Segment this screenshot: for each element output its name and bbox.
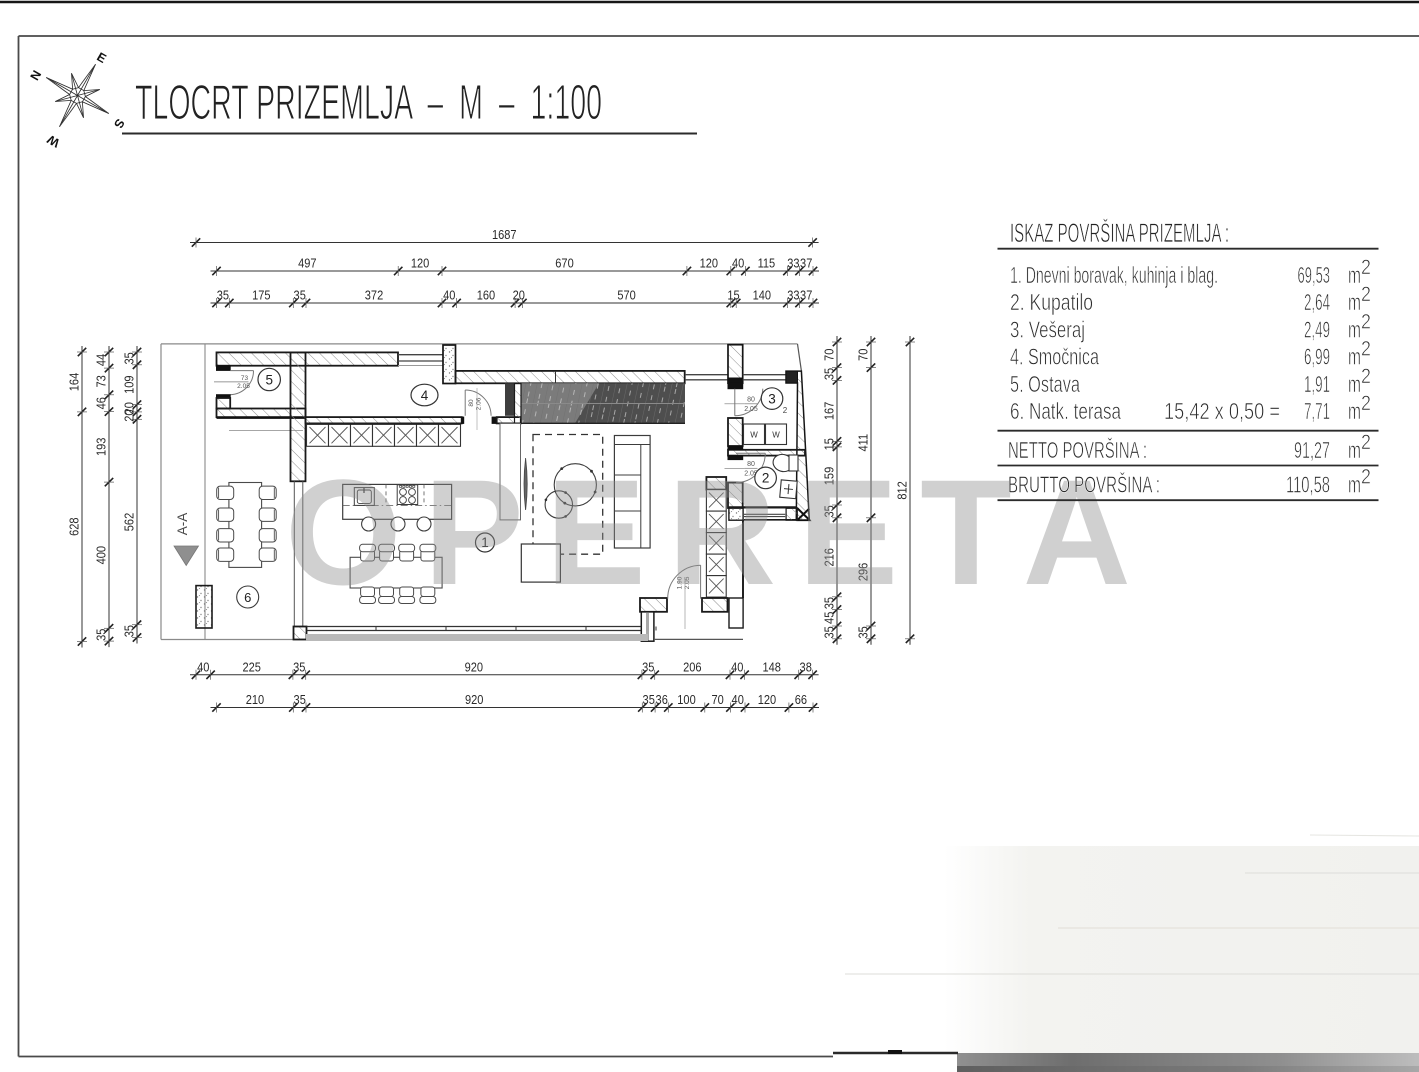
svg-text:m: m [1348, 438, 1361, 463]
svg-text:33: 33 [787, 256, 800, 271]
svg-text:40: 40 [732, 256, 745, 271]
svg-text:m: m [1348, 372, 1361, 397]
svg-text:115: 115 [758, 256, 776, 271]
svg-text:91,27: 91,27 [1294, 438, 1330, 463]
svg-text:20: 20 [122, 409, 137, 422]
svg-text:2: 2 [1361, 256, 1371, 280]
svg-text:S: S [111, 116, 127, 130]
svg-text:TLOCRT PRIZEMLJA – M – 1:1: TLOCRT PRIZEMLJA – M – 1:100 [135, 75, 602, 130]
svg-text:70: 70 [711, 692, 724, 707]
svg-text:80: 80 [468, 399, 475, 407]
svg-text:109: 109 [122, 375, 137, 394]
svg-text:2: 2 [1361, 465, 1371, 489]
svg-text:140: 140 [753, 288, 772, 303]
svg-text:670: 670 [555, 256, 574, 271]
svg-text:148: 148 [762, 659, 781, 674]
svg-text:m: m [1348, 263, 1361, 288]
svg-text:160: 160 [477, 288, 496, 303]
svg-text:70: 70 [856, 348, 871, 361]
svg-text:W: W [772, 431, 780, 440]
svg-text:167: 167 [822, 401, 837, 420]
svg-text:4: 4 [421, 388, 429, 403]
svg-text:110,58: 110,58 [1286, 473, 1330, 498]
svg-text:66: 66 [795, 692, 808, 707]
svg-text:120: 120 [758, 692, 777, 707]
svg-text:920: 920 [465, 692, 484, 707]
svg-text:7,71: 7,71 [1304, 399, 1330, 424]
svg-text:m: m [1348, 290, 1361, 315]
svg-text:2: 2 [1361, 431, 1371, 455]
svg-text:6: 6 [244, 590, 251, 605]
svg-text:2: 2 [1361, 364, 1371, 388]
svg-text:35: 35 [294, 692, 307, 707]
svg-text:73: 73 [94, 375, 109, 388]
svg-text:2.05: 2.05 [237, 383, 250, 390]
svg-text:5. Ostava: 5. Ostava [1010, 372, 1080, 397]
svg-text:40: 40 [197, 659, 210, 674]
svg-text:37: 37 [800, 288, 813, 303]
svg-text:2.05: 2.05 [744, 406, 758, 413]
svg-text:2,64: 2,64 [1304, 290, 1330, 315]
svg-text:920: 920 [465, 659, 484, 674]
svg-text:A-A: A-A [175, 513, 190, 536]
svg-text:562: 562 [122, 513, 137, 532]
svg-text:4. Smočnica: 4. Smočnica [1010, 345, 1099, 370]
svg-text:46: 46 [94, 397, 109, 410]
svg-text:m: m [1348, 399, 1361, 424]
svg-text:35: 35 [643, 692, 656, 707]
svg-text:40: 40 [443, 288, 456, 303]
svg-text:3. Vešeraj: 3. Vešeraj [1010, 318, 1085, 343]
svg-text:15: 15 [727, 288, 740, 303]
svg-text:3: 3 [768, 391, 776, 406]
svg-text:2: 2 [1361, 310, 1371, 334]
svg-text:1. Dnevni boravak, kuhinja i b: 1. Dnevni boravak, kuhinja i blag. [1010, 263, 1218, 288]
svg-text:35: 35 [217, 288, 230, 303]
svg-text:175: 175 [252, 288, 271, 303]
svg-text:40: 40 [731, 659, 744, 674]
svg-text:497: 497 [298, 256, 317, 271]
svg-text:80: 80 [747, 397, 755, 404]
svg-text:70: 70 [822, 348, 837, 361]
svg-text:400: 400 [94, 546, 109, 565]
svg-text:69,53: 69,53 [1298, 263, 1330, 288]
svg-text:164: 164 [67, 373, 82, 392]
svg-text:35: 35 [94, 628, 109, 641]
svg-text:628: 628 [67, 517, 82, 536]
svg-text:15,42 x 0,50 =: 15,42 x 0,50 = [1164, 399, 1280, 424]
svg-text:35: 35 [294, 288, 307, 303]
svg-text:35: 35 [122, 352, 137, 365]
svg-text:E: E [94, 50, 108, 66]
svg-text:35: 35 [822, 626, 837, 639]
svg-text:m: m [1348, 473, 1361, 498]
svg-text:33: 33 [787, 288, 800, 303]
svg-text:W: W [45, 132, 62, 150]
svg-text:225: 225 [242, 659, 261, 674]
svg-text:6,99: 6,99 [1304, 345, 1330, 370]
svg-text:120: 120 [411, 256, 430, 271]
svg-text:BRUTTO POVRŠINA :: BRUTTO POVRŠINA : [1008, 473, 1160, 498]
svg-text:2,49: 2,49 [1304, 318, 1330, 343]
svg-text:m: m [1348, 345, 1361, 370]
svg-text:20: 20 [513, 288, 526, 303]
svg-text:35: 35 [122, 625, 137, 638]
svg-text:1687: 1687 [492, 227, 517, 242]
svg-text:40: 40 [732, 692, 745, 707]
svg-text:1,91: 1,91 [1304, 372, 1330, 397]
svg-text:5: 5 [265, 372, 273, 387]
svg-text:W: W [750, 431, 758, 440]
svg-text:NETTO POVRŠINA :: NETTO POVRŠINA : [1008, 438, 1147, 463]
svg-text:2: 2 [1361, 337, 1371, 361]
svg-text:120: 120 [700, 256, 719, 271]
svg-text:2. Kupatilo: 2. Kupatilo [1010, 290, 1093, 315]
svg-text:ISKAZ POVRŠINA PRIZEMLJA :: ISKAZ POVRŠINA PRIZEMLJA : [1010, 218, 1229, 249]
svg-text:2.06: 2.06 [476, 397, 483, 410]
svg-text:2: 2 [1361, 283, 1371, 307]
svg-text:206: 206 [683, 659, 702, 674]
svg-text:N: N [28, 68, 45, 83]
svg-text:6. Natk. terasa: 6. Natk. terasa [1010, 399, 1121, 424]
svg-text:100: 100 [677, 692, 696, 707]
svg-text:35: 35 [642, 659, 655, 674]
svg-text:193: 193 [94, 437, 109, 456]
svg-text:73: 73 [241, 375, 249, 382]
svg-text:38: 38 [800, 659, 813, 674]
svg-text:2: 2 [783, 406, 788, 415]
svg-text:35: 35 [822, 368, 837, 381]
svg-text:570: 570 [617, 288, 636, 303]
svg-text:m: m [1348, 318, 1361, 343]
svg-text:2: 2 [1361, 392, 1371, 416]
svg-text:35: 35 [293, 659, 306, 674]
svg-text:37: 37 [800, 256, 813, 271]
svg-text:44: 44 [94, 354, 109, 367]
svg-text:210: 210 [246, 692, 265, 707]
svg-text:35: 35 [856, 626, 871, 639]
svg-text:36: 36 [656, 692, 669, 707]
svg-text:372: 372 [365, 288, 384, 303]
